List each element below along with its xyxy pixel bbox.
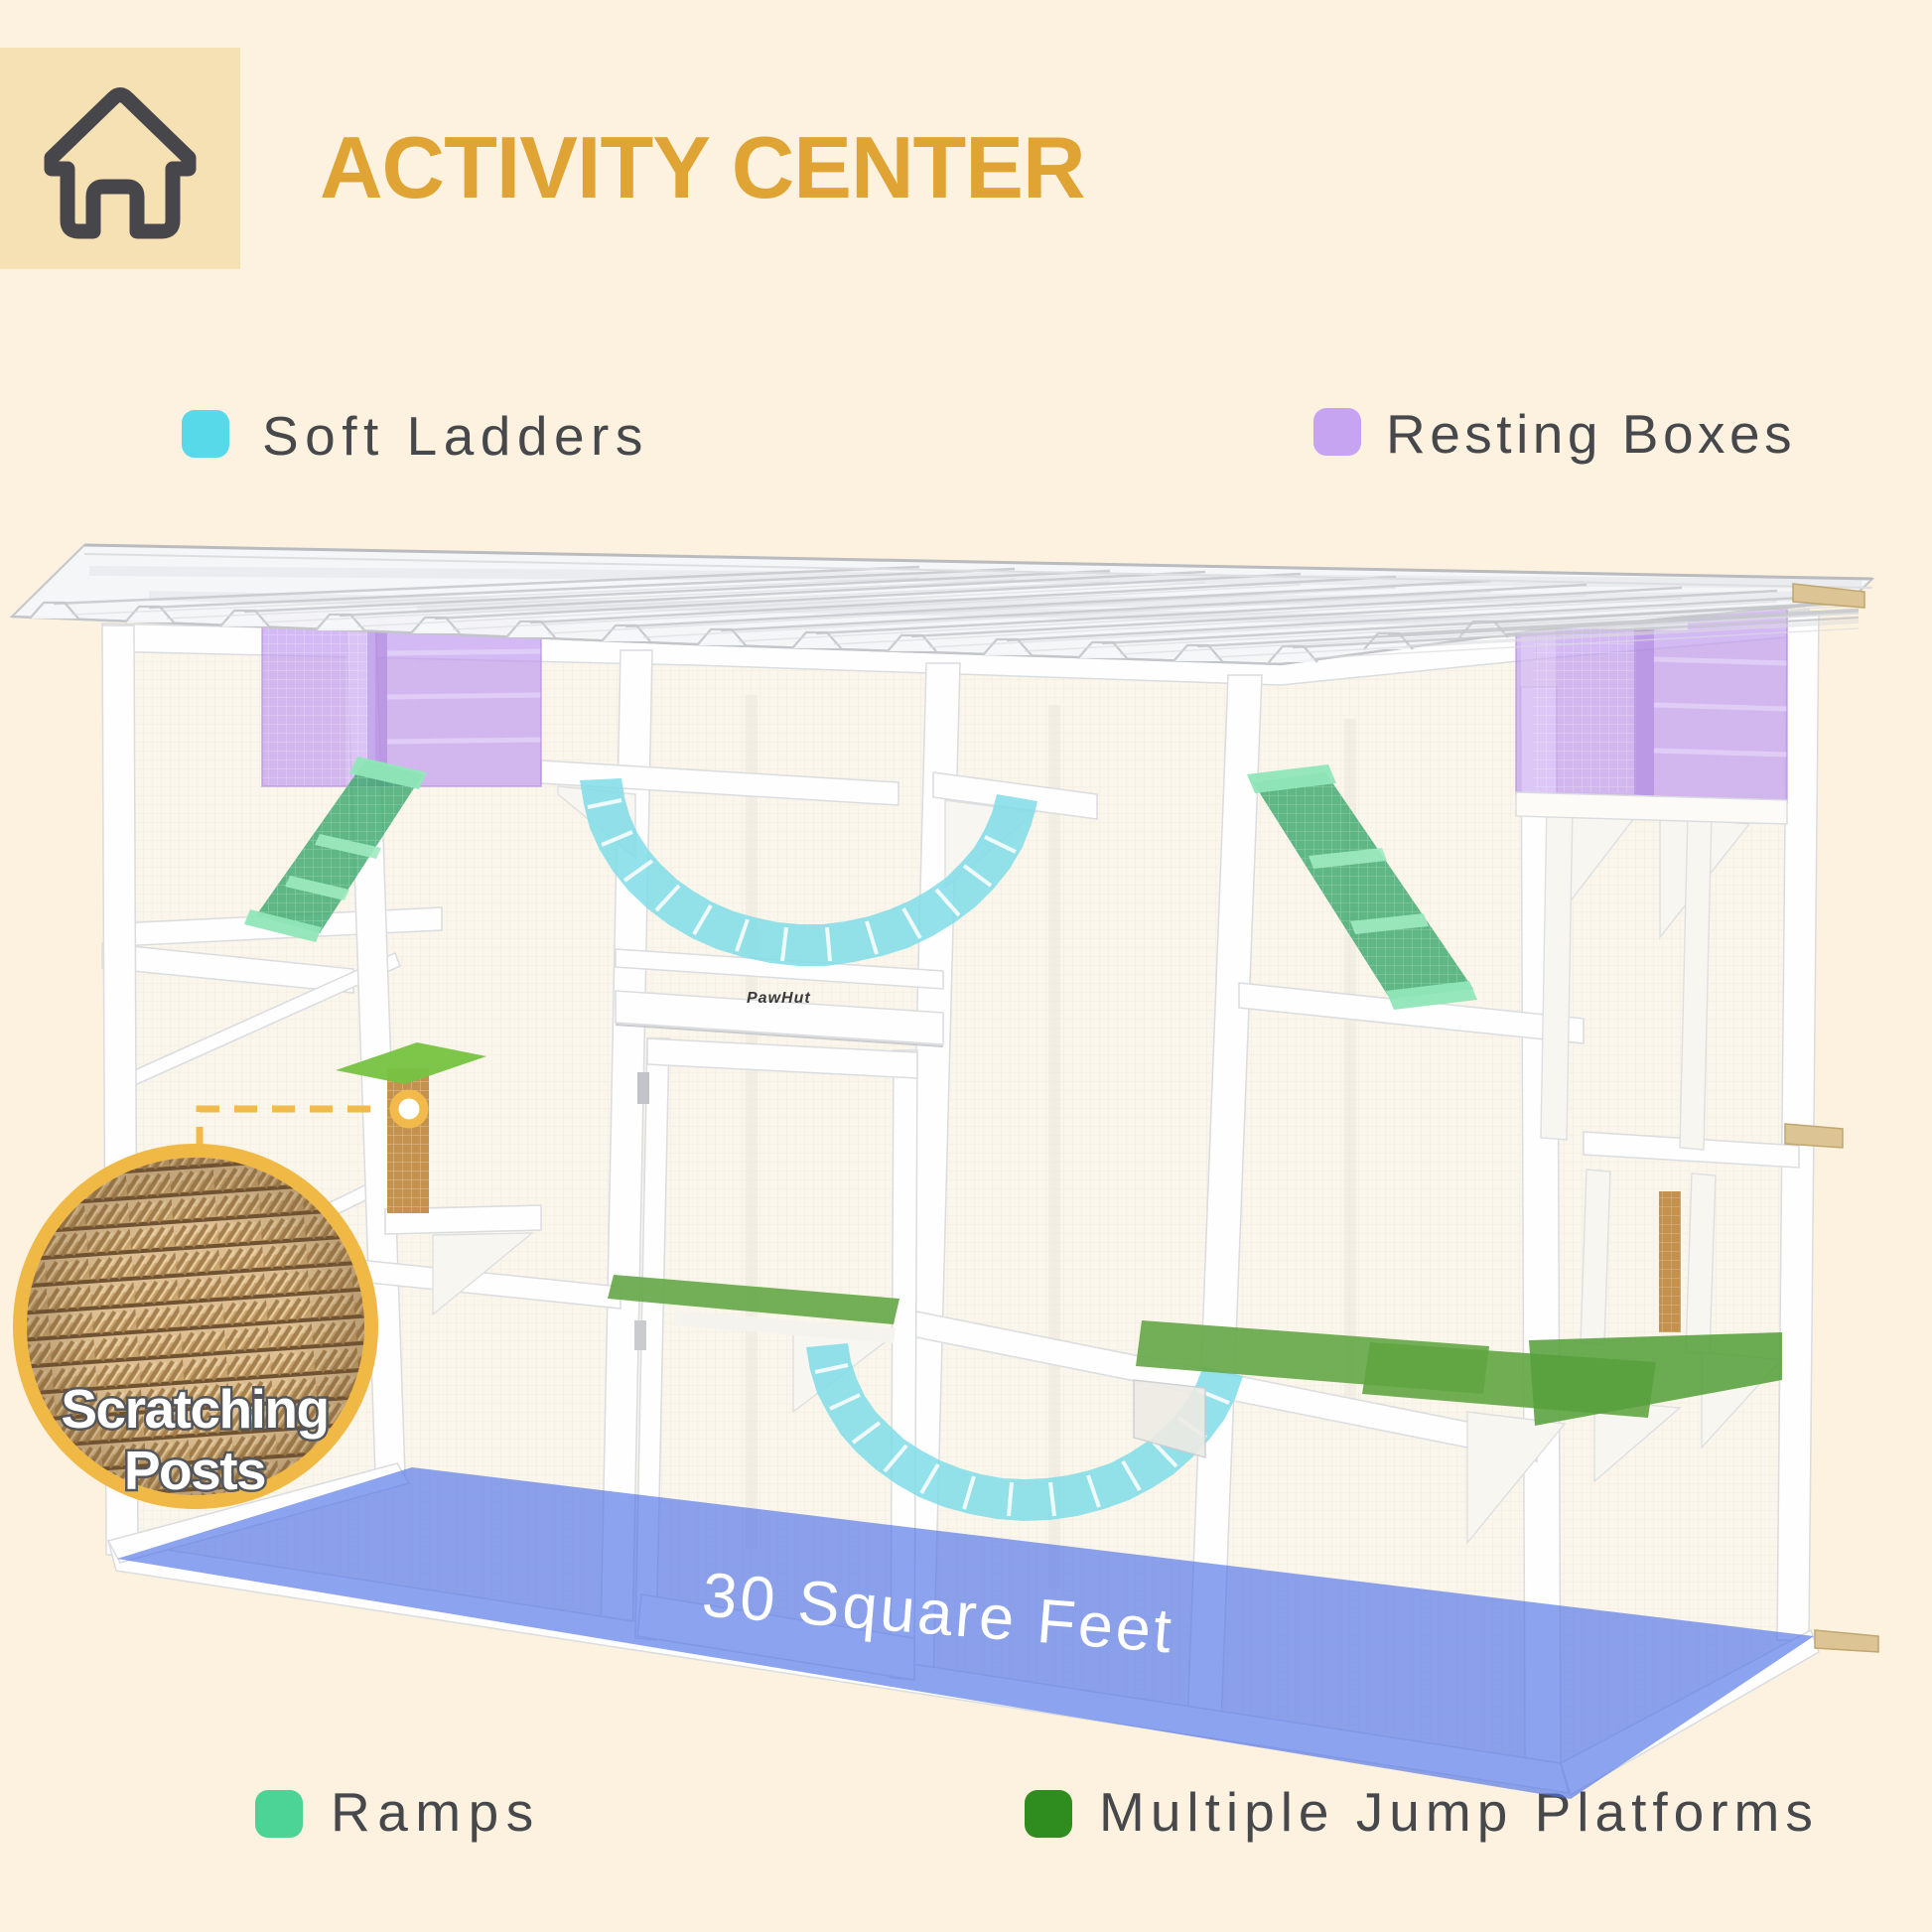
svg-text:Scratching: Scratching xyxy=(61,1378,328,1440)
svg-text:PawHut: PawHut xyxy=(747,990,811,1007)
svg-text:Posts: Posts xyxy=(124,1440,265,1501)
